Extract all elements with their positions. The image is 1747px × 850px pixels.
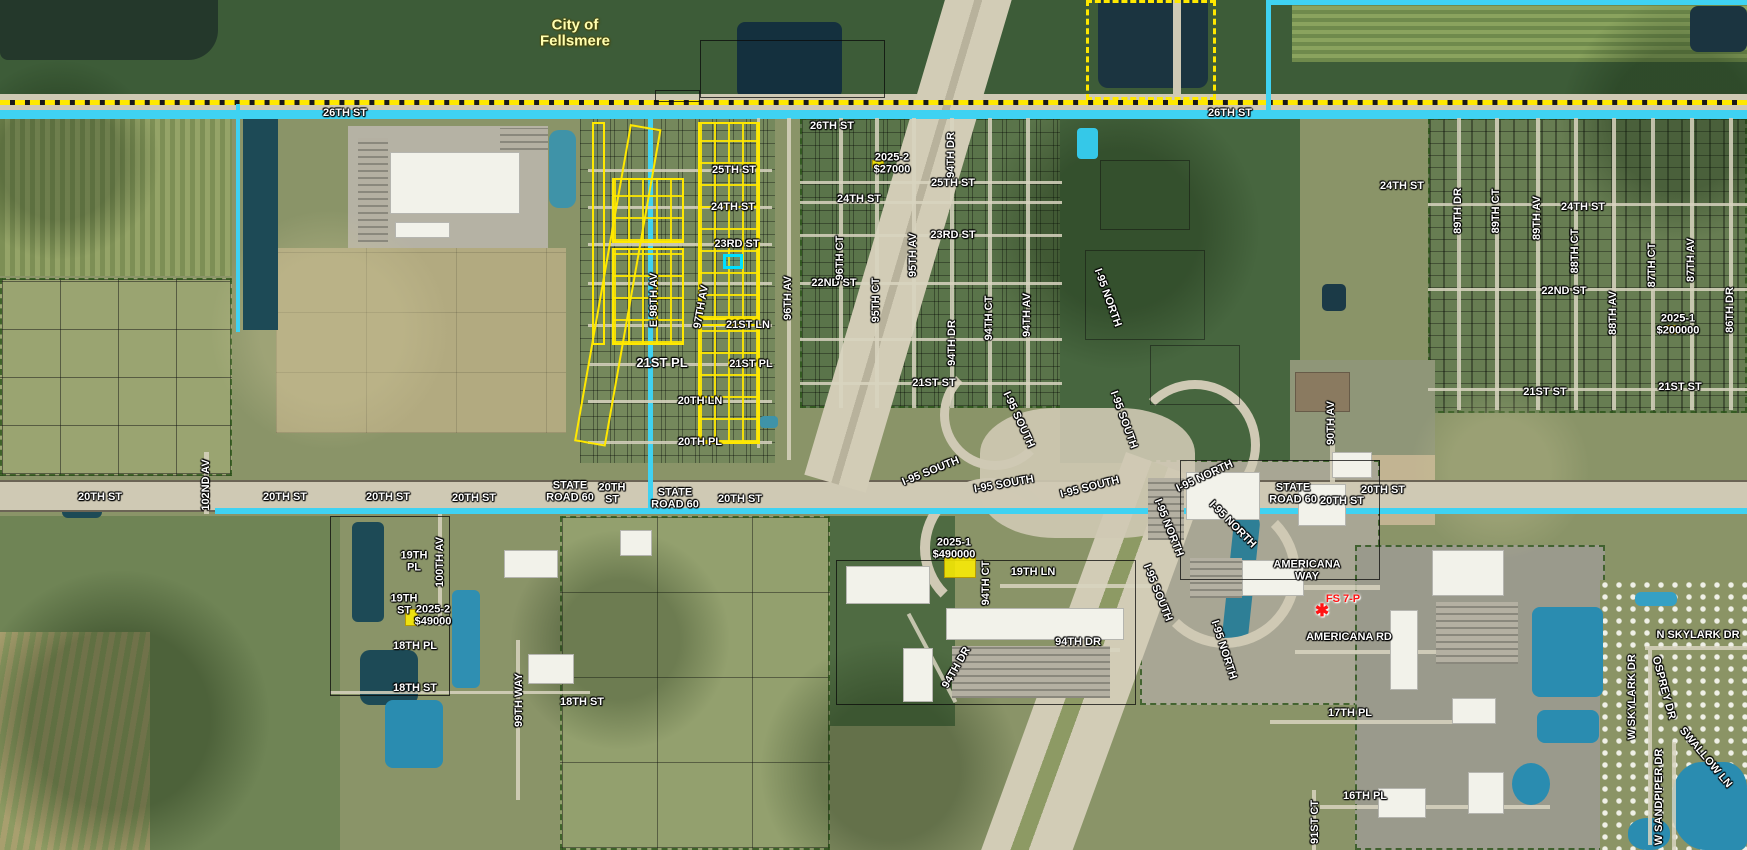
subdivision-right [1428, 118, 1747, 413]
street [1312, 790, 1316, 850]
parcel-outline [1085, 250, 1205, 340]
sale-highlight-parcel[interactable] [405, 609, 418, 626]
street [1457, 118, 1461, 410]
warehouse-building [390, 152, 520, 214]
parcel-outline [700, 40, 885, 98]
warehouse-building [395, 222, 450, 238]
industrial-building [1378, 788, 1426, 818]
canal-line-20th [215, 508, 1747, 514]
street [1495, 118, 1499, 410]
sale-highlight-parcel[interactable] [1664, 325, 1677, 334]
street [787, 118, 791, 460]
pond [549, 130, 576, 208]
street [950, 118, 954, 408]
pond-dark [1322, 284, 1346, 311]
street [1645, 646, 1747, 650]
street-label: 24TH ST [1380, 181, 1424, 193]
street [1428, 203, 1747, 206]
street [1428, 288, 1747, 291]
street [1672, 742, 1676, 850]
street [1574, 118, 1578, 410]
industrial-building [1432, 550, 1504, 596]
pond [1512, 763, 1550, 805]
pond [760, 416, 778, 428]
sale-highlight-parcel[interactable] [872, 160, 884, 168]
cleared-field-center [276, 248, 566, 433]
warehouse-building [620, 530, 652, 556]
pond [385, 700, 443, 768]
industrial-building [1452, 698, 1496, 724]
vacant-bottom-center [560, 516, 830, 850]
street [516, 640, 520, 800]
highlighted-block[interactable] [698, 122, 760, 320]
street [1295, 650, 1445, 654]
canal-water-left [243, 106, 278, 330]
farm-field-topright [1292, 0, 1747, 62]
farm-field-left [0, 118, 232, 276]
industrial-building [1390, 610, 1418, 690]
street [1320, 805, 1550, 809]
street [1648, 650, 1652, 845]
highlighted-block[interactable] [698, 324, 760, 444]
lake-skylark [1672, 762, 1747, 850]
warehouse-building [504, 550, 558, 578]
street [1690, 118, 1694, 410]
pond [1537, 710, 1599, 743]
vacant-blocks-left [0, 278, 232, 476]
parcel-outline [836, 560, 1136, 705]
canal-line-26th [0, 110, 1747, 119]
pond-dark-topright-corner [1690, 6, 1747, 52]
highlighted-block[interactable] [612, 178, 684, 243]
street [1651, 118, 1655, 410]
i95-ramp-arc [940, 360, 1050, 470]
street [839, 118, 843, 408]
parcel-outline [1100, 160, 1190, 230]
selected-parcel[interactable] [723, 254, 743, 269]
parcel-outline [330, 516, 450, 696]
pond [1532, 607, 1603, 697]
street [912, 118, 916, 408]
sale-highlight-parcel[interactable] [944, 552, 976, 578]
parcel-outline [1150, 345, 1240, 405]
canal-line-left [236, 104, 240, 332]
parcel-outline [1180, 460, 1380, 580]
pond [1635, 592, 1677, 606]
marsh-pond-topleft [0, 0, 218, 60]
street [1729, 118, 1733, 410]
street [988, 118, 992, 408]
city-boundary-pond-box [1086, 0, 1216, 100]
street [1026, 118, 1030, 408]
street [1612, 118, 1616, 410]
canal-line-topright-h [1266, 0, 1747, 5]
map-canvas[interactable]: ✱City of Fellsmere26TH ST26TH ST26TH ST2… [0, 0, 1747, 850]
parking-lot [500, 128, 548, 150]
industrial-building [1468, 772, 1504, 814]
street [204, 452, 209, 514]
parcel-outline [655, 90, 700, 102]
truck-lot [1436, 602, 1518, 664]
commercial-building [1295, 372, 1350, 412]
canal-line-topright-v [1266, 0, 1271, 112]
parking-lot [1148, 478, 1184, 540]
street [1428, 388, 1747, 391]
farm-field-bottomleft [0, 632, 150, 850]
pond-cyan [1077, 128, 1098, 159]
pond [452, 590, 480, 688]
street [1536, 118, 1540, 410]
warehouse-building [528, 654, 574, 684]
parking-lot [358, 138, 388, 242]
highlighted-block[interactable] [612, 248, 684, 345]
city-boundary-dashes [0, 100, 1747, 105]
